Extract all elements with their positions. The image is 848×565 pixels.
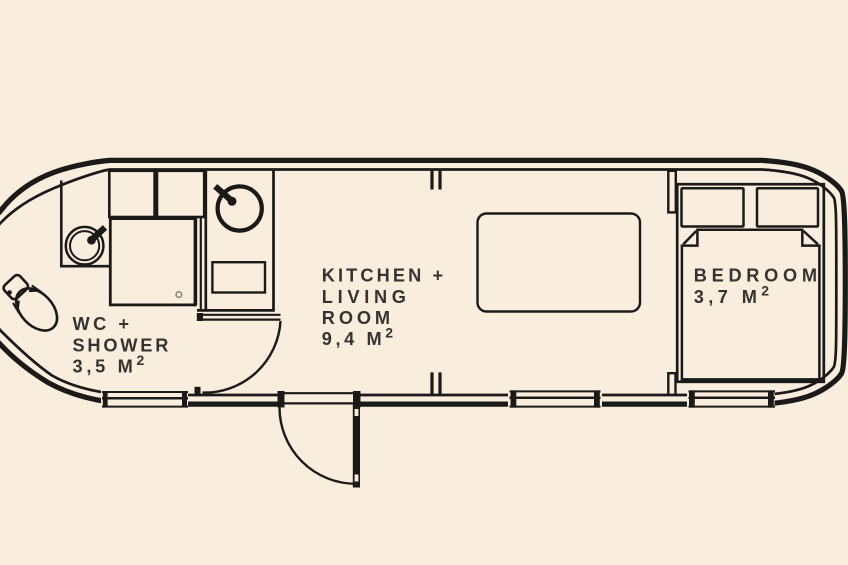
svg-text:WC +: WC + [73,314,133,334]
svg-text:LIVING: LIVING [322,287,411,307]
svg-text:ROOM: ROOM [322,308,394,328]
svg-text:KITCHEN +: KITCHEN + [322,266,446,286]
svg-text:SHOWER: SHOWER [73,336,172,356]
svg-text:BEDROOM: BEDROOM [694,265,822,285]
